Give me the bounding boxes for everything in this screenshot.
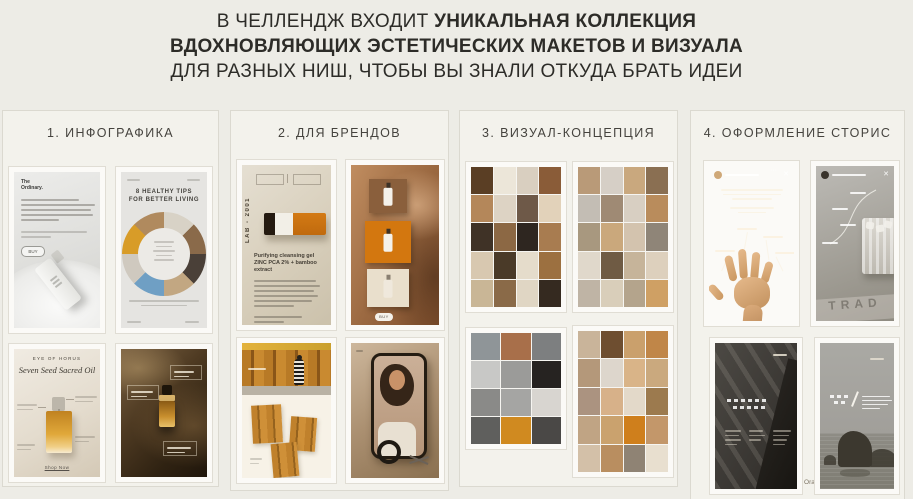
mockup-oil-infographic: EYE OF HORUS Seven Seed Sacred Oil Shop … bbox=[14, 349, 100, 477]
logo-text-block bbox=[862, 393, 892, 409]
spaced-logo bbox=[830, 395, 848, 404]
mini-bottle bbox=[384, 280, 393, 298]
annotation-label bbox=[17, 441, 37, 450]
thumb-ordinary-product-page: TheOrdinary. BUY bbox=[8, 166, 106, 334]
section-2-title: 2. ДЛЯ БРЕНДОВ bbox=[231, 126, 448, 140]
portrait-face bbox=[389, 370, 405, 390]
sidewalk bbox=[242, 386, 331, 395]
thumb-face-swatches: BUY bbox=[345, 159, 445, 331]
thumb-street-collage bbox=[236, 337, 337, 484]
wheel-title: 8 HEALTHY TIPSFOR BETTER LIVING bbox=[121, 188, 207, 204]
script-caption bbox=[121, 297, 207, 306]
thumb-story-architecture bbox=[709, 337, 803, 495]
bottle-label bbox=[275, 213, 293, 235]
flow-label bbox=[832, 208, 848, 210]
mini-bottle bbox=[384, 234, 393, 252]
description-lines bbox=[254, 277, 324, 307]
landing-page-section: В ЧЕЛЛЕНДЖ ВХОДИТ УНИКАЛЬНАЯ КОЛЛЕКЦИЯ В… bbox=[0, 0, 913, 499]
section-for-brands: 2. ДЛЯ БРЕНДОВ LAB - 2001 Purifying clea… bbox=[230, 110, 449, 491]
flow-label bbox=[840, 224, 856, 226]
username bbox=[725, 174, 759, 176]
oil-bottle bbox=[159, 401, 175, 427]
instagram-grid-collage bbox=[578, 331, 668, 472]
corner-label bbox=[127, 318, 143, 323]
text-lines bbox=[21, 196, 93, 221]
text-column bbox=[773, 427, 793, 445]
thumb-feed-grid-2 bbox=[572, 161, 674, 313]
corner-label bbox=[127, 176, 141, 181]
mini-bottle bbox=[384, 188, 393, 206]
bottle-body bbox=[293, 213, 326, 235]
avatar bbox=[714, 171, 722, 179]
close-icon[interactable]: ✕ bbox=[783, 170, 789, 178]
karst-island bbox=[870, 449, 894, 467]
thumb-feed-grid-4 bbox=[572, 325, 674, 478]
close-icon[interactable]: ✕ bbox=[883, 170, 889, 178]
island-reflection bbox=[840, 469, 870, 477]
corner-label bbox=[187, 176, 201, 181]
thumb-feed-grid-1 bbox=[465, 161, 567, 313]
vertical-brand-label: LAB - 2001 bbox=[245, 197, 251, 243]
shop-now-link[interactable]: Shop Now bbox=[14, 465, 100, 470]
thumb-phone-mockup bbox=[345, 337, 445, 484]
polaroid-photo bbox=[271, 442, 300, 478]
orange-bottle bbox=[264, 213, 326, 235]
finger-label bbox=[763, 236, 783, 238]
footnote-lines bbox=[254, 313, 324, 323]
wrist bbox=[741, 304, 762, 321]
title-line-2: ВДОХНОВЛЯЮЩИХ ЭСТЕТИЧЕСКИХ МАКЕТОВ И ВИЗ… bbox=[0, 34, 913, 59]
page-title: В ЧЕЛЛЕНДЖ ВХОДИТ УНИКАЛЬНАЯ КОЛЛЕКЦИЯ В… bbox=[0, 9, 913, 84]
section-3-title: 3. ВИЗУАЛ-КОНЦЕПЦИЯ bbox=[460, 126, 677, 140]
thumb-feed-grid-3 bbox=[465, 327, 567, 450]
brand-logo: EYE OF HORUS bbox=[14, 356, 100, 361]
annotation-line bbox=[66, 399, 74, 400]
buy-button[interactable]: BUY bbox=[21, 246, 45, 257]
slash-divider bbox=[851, 391, 858, 406]
section-4-title: 4. ОФОРМЛЕНИЕ СТОРИС bbox=[691, 126, 904, 140]
flow-label bbox=[822, 242, 838, 244]
spaced-title bbox=[727, 399, 766, 409]
caption-lines bbox=[250, 455, 264, 464]
swatch-cream bbox=[367, 269, 409, 307]
annotation-box bbox=[127, 385, 159, 400]
section-stories-design: 4. ОФОРМЛЕНИЕ СТОРИС ··· ✕ bbox=[690, 110, 905, 499]
flow-label bbox=[850, 192, 866, 194]
finger-label bbox=[737, 228, 757, 230]
thumb-lab-product: LAB - 2001 Purifying cleansing gelZINC P… bbox=[236, 159, 337, 331]
product-title: Seven Seed Sacred Oil bbox=[14, 365, 100, 375]
storefront-photo bbox=[242, 343, 331, 395]
annotation-label bbox=[75, 393, 97, 402]
annotation-label bbox=[17, 401, 37, 410]
instagram-grid-collage bbox=[471, 167, 561, 307]
finger bbox=[723, 255, 737, 282]
thumb-dark-oil bbox=[115, 343, 213, 483]
corner-caption bbox=[870, 355, 886, 360]
dropper-cap bbox=[162, 385, 172, 395]
section-infographics: 1. ИНФОГРАФИКА TheOrdinary. BUY 8 HEALTH… bbox=[2, 110, 219, 487]
iced-latte-glass bbox=[862, 218, 894, 274]
mockup-face-with-swatches: BUY bbox=[351, 165, 439, 325]
sculpture-shadow bbox=[747, 358, 797, 489]
mockup-infographic-wheel: 8 HEALTHY TIPSFOR BETTER LIVING bbox=[121, 172, 207, 328]
story-header: ··· ✕ bbox=[714, 171, 789, 180]
person-striped-dress bbox=[294, 359, 304, 385]
text-column bbox=[725, 427, 743, 445]
story-text-block bbox=[719, 204, 784, 213]
corner-icon bbox=[356, 347, 364, 352]
product-name: Purifying cleansing gelZINC PCA 2% + bam… bbox=[254, 253, 331, 274]
buy-button[interactable]: BUY bbox=[375, 313, 393, 321]
annotation-box bbox=[170, 365, 202, 380]
hand-photo bbox=[716, 249, 788, 321]
more-icon[interactable]: ··· bbox=[770, 167, 777, 174]
mockup-brand-page: LAB - 2001 Purifying cleansing gelZINC P… bbox=[242, 165, 331, 325]
thumb-story-latte: ✕ TRAD bbox=[810, 160, 900, 327]
nav-divider bbox=[287, 174, 288, 183]
story-mockup-seascape bbox=[820, 343, 894, 489]
avatar bbox=[821, 171, 829, 179]
thumb-story-hand: ··· ✕ bbox=[703, 160, 800, 327]
story-mockup-latte: ✕ TRAD bbox=[816, 166, 894, 321]
polaroid-photo bbox=[251, 404, 283, 444]
oil-bottle bbox=[46, 411, 72, 453]
ice-cube bbox=[883, 220, 893, 229]
nav-tab bbox=[293, 174, 321, 185]
story-text-block bbox=[719, 186, 784, 200]
thumb-story-bay bbox=[814, 337, 900, 495]
mockup-oil-on-silk bbox=[121, 349, 207, 477]
nav-tab bbox=[256, 174, 284, 185]
title-line-1: В ЧЕЛЛЕНДЖ ВХОДИТ УНИКАЛЬНАЯ КОЛЛЕКЦИЯ bbox=[0, 9, 913, 34]
swatch-brown bbox=[369, 179, 407, 213]
story-header: ✕ bbox=[821, 171, 889, 180]
title-line-3: ДЛЯ РАЗНЫХ НИШ, ЧТОБЫ ВЫ ЗНАЛИ ОТКУДА БР… bbox=[0, 59, 913, 84]
finger bbox=[737, 249, 747, 279]
instagram-grid-collage bbox=[471, 333, 561, 444]
text-lines bbox=[21, 228, 93, 238]
text-column bbox=[749, 427, 767, 441]
story-mockup-hand: ··· ✕ bbox=[709, 166, 794, 321]
corner-label bbox=[185, 318, 201, 323]
mockup-phone-on-table bbox=[351, 343, 439, 478]
brand-logo: TheOrdinary. bbox=[21, 179, 43, 191]
headphones bbox=[377, 440, 401, 464]
swatch-orange bbox=[365, 221, 411, 263]
ice-cube bbox=[866, 221, 875, 229]
section-1-title: 1. ИНФОГРАФИКА bbox=[3, 126, 218, 140]
photo-caption bbox=[248, 365, 268, 370]
annotation-line bbox=[38, 407, 46, 408]
annotation-label bbox=[75, 433, 95, 442]
annotation-box bbox=[163, 441, 197, 456]
instagram-grid-collage bbox=[578, 167, 668, 307]
corner-caption bbox=[773, 351, 789, 356]
section-visual-concept: 3. ВИЗУАЛ-КОНЦЕПЦИЯ bbox=[459, 110, 678, 487]
wheel-labels bbox=[138, 228, 190, 280]
mockup-street-collage bbox=[242, 343, 331, 478]
mockup-product-page: TheOrdinary. BUY bbox=[14, 172, 100, 328]
username bbox=[832, 174, 866, 176]
thumb-healthy-tips-wheel: 8 HEALTHY TIPSFOR BETTER LIVING bbox=[115, 166, 213, 334]
story-mockup-architecture bbox=[715, 343, 797, 489]
shop-sign bbox=[242, 343, 331, 350]
karst-island bbox=[824, 455, 836, 465]
thumb-horus-oil: EYE OF HORUS Seven Seed Sacred Oil Shop … bbox=[8, 343, 106, 483]
photo-wheel bbox=[122, 212, 206, 296]
karst-island bbox=[838, 431, 872, 467]
thumb-finger bbox=[709, 283, 724, 302]
bottle-cap bbox=[264, 213, 275, 235]
